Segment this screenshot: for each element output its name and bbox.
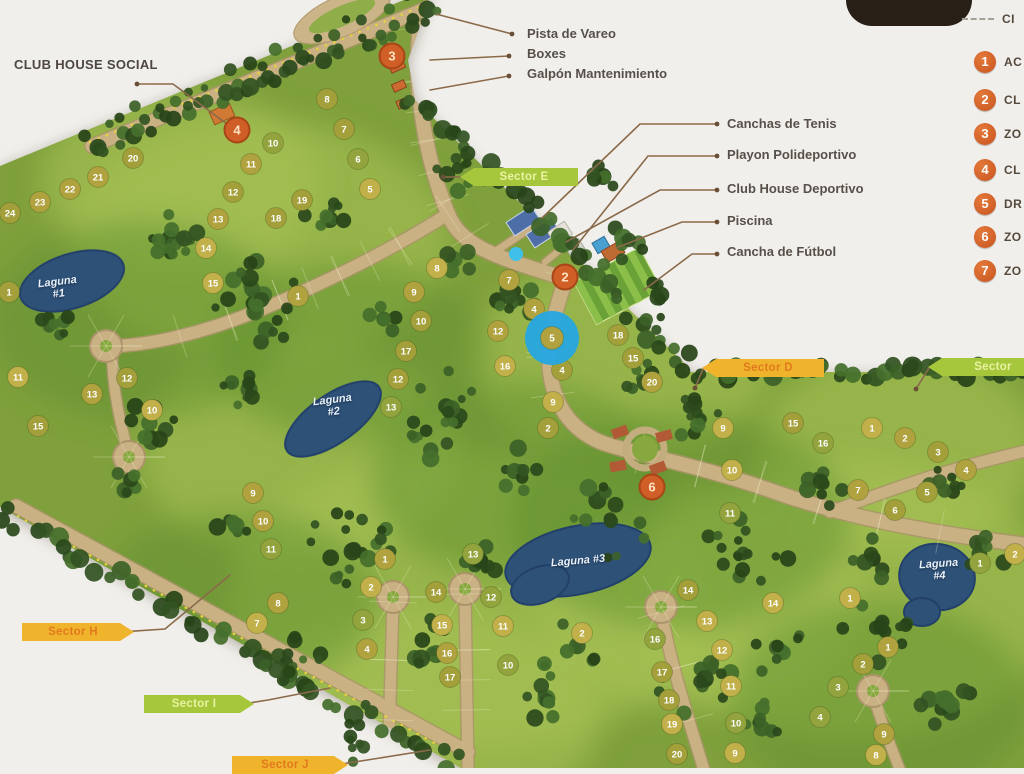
svg-text:9: 9 [732, 748, 737, 759]
svg-text:22: 22 [65, 184, 76, 195]
svg-text:2: 2 [579, 628, 584, 639]
lot-marker: 13 [697, 611, 718, 632]
svg-text:10: 10 [268, 138, 279, 149]
svg-text:11: 11 [498, 621, 509, 632]
lot-marker: 12 [388, 369, 409, 390]
lot-marker: 15 [28, 416, 49, 437]
svg-text:8: 8 [275, 598, 280, 609]
map-marker-2: 2 [553, 265, 578, 290]
lot-marker: 6 [885, 500, 906, 521]
svg-text:1: 1 [295, 291, 301, 302]
svg-text:18: 18 [664, 695, 675, 706]
svg-text:6: 6 [892, 505, 897, 516]
lot-marker: 16 [495, 356, 516, 377]
lot-marker: 11 [720, 503, 741, 524]
lot-marker: 24 [0, 203, 21, 224]
legend-item-marker: 3 [974, 123, 996, 145]
svg-text:12: 12 [486, 592, 497, 603]
lot-marker: 17 [396, 341, 417, 362]
svg-text:4: 4 [559, 365, 565, 376]
lot-marker: 8 [317, 89, 338, 110]
lot-marker: 22 [60, 179, 81, 200]
legend-label: CL [1004, 163, 1021, 177]
lot-marker: 11 [241, 154, 262, 175]
map-marker-6: 6 [640, 475, 665, 500]
lot-marker: 2 [538, 418, 559, 439]
sector-banner-label: Sector E [499, 171, 548, 183]
legend-item-marker: 2 [974, 89, 996, 111]
svg-text:10: 10 [503, 660, 514, 671]
lot-marker: 12 [223, 182, 244, 203]
svg-text:4: 4 [233, 123, 241, 138]
lot-marker: 11 [493, 616, 514, 637]
lot-marker: 3 [928, 442, 949, 463]
lot-marker: 2 [853, 654, 874, 675]
lot-marker: 2 [1005, 544, 1024, 565]
legend-item-6: 6ZO [974, 226, 1021, 248]
svg-text:21: 21 [93, 172, 104, 183]
lot-marker: 14 [196, 238, 217, 259]
sector-banner-right: Sector [928, 358, 1024, 376]
lot-marker: 10 [263, 133, 284, 154]
svg-text:9: 9 [720, 423, 725, 434]
svg-text:11: 11 [725, 508, 736, 519]
svg-text:5: 5 [367, 184, 373, 195]
label-piscina: Piscina [727, 213, 773, 228]
legend-item-marker: 5 [974, 193, 996, 215]
svg-text:1: 1 [847, 593, 853, 604]
lot-marker: 4 [810, 707, 831, 728]
lot-marker: 4 [357, 639, 378, 660]
lot-marker: 10 [142, 400, 163, 421]
svg-text:15: 15 [208, 278, 219, 289]
svg-text:1: 1 [977, 558, 983, 569]
svg-text:3: 3 [360, 615, 365, 626]
label-club-house-deportivo: Club House Deportivo [727, 181, 864, 196]
lot-marker: 10 [498, 655, 519, 676]
legend-item-2: 2CL [974, 89, 1021, 111]
sector-banner-label: Sector [974, 361, 1012, 373]
svg-text:9: 9 [250, 488, 255, 499]
lot-marker: 20 [642, 372, 663, 393]
svg-text:5: 5 [924, 487, 930, 498]
svg-text:8: 8 [324, 94, 329, 105]
lot-marker: 9 [243, 483, 264, 504]
legend-label: AC [1004, 55, 1022, 69]
svg-text:3: 3 [835, 682, 840, 693]
legend-item-5: 5DR [974, 193, 1022, 215]
lot-marker: 13 [208, 209, 229, 230]
svg-text:2: 2 [1012, 549, 1017, 560]
legend-item-3: 3ZO [974, 123, 1021, 145]
lot-marker: 16 [813, 433, 834, 454]
legend-dashed-item: CI [962, 12, 1015, 26]
lot-marker: 8 [268, 593, 289, 614]
sector-banner-j: Sector J [232, 756, 348, 774]
svg-text:1: 1 [885, 642, 891, 653]
masterplan-map: 2021222324101112131415187651918111213101… [0, 0, 1024, 768]
lot-marker: 12 [712, 640, 733, 661]
svg-text:11: 11 [13, 372, 24, 383]
lot-marker: 16 [645, 629, 666, 650]
legend-label: CI [1002, 12, 1015, 26]
lot-marker: 2 [572, 623, 593, 644]
lot-marker: 15 [783, 413, 804, 434]
label-pista-de-vareo: Pista de Vareo [527, 26, 616, 41]
lot-marker: 13 [381, 397, 402, 418]
lot-marker: 7 [247, 613, 268, 634]
svg-text:14: 14 [683, 585, 694, 596]
lot-marker: 15 [203, 273, 224, 294]
lot-marker: 12 [481, 587, 502, 608]
svg-text:13: 13 [702, 616, 713, 627]
svg-text:1: 1 [869, 423, 875, 434]
svg-text:4: 4 [963, 465, 969, 476]
svg-text:11: 11 [266, 544, 277, 555]
svg-text:2: 2 [561, 270, 568, 285]
piscina-dot [509, 247, 523, 261]
svg-text:1: 1 [382, 554, 388, 565]
sector-banner-i: Sector I [144, 695, 254, 713]
legend-label: ZO [1004, 230, 1021, 244]
svg-text:13: 13 [213, 214, 224, 225]
svg-text:11: 11 [246, 159, 257, 170]
lot-marker: 1 [840, 588, 861, 609]
lot-marker: 5 [360, 179, 381, 200]
lot-marker: 1 [375, 549, 396, 570]
legend-item-marker: 1 [974, 51, 996, 73]
lot-marker: 2 [895, 428, 916, 449]
svg-text:10: 10 [147, 405, 158, 416]
sector-banner-h: Sector H [22, 623, 134, 641]
sector-banner-label: Sector H [48, 626, 98, 638]
lot-marker: 9 [874, 724, 895, 745]
lot-marker: 18 [608, 325, 629, 346]
lot-marker: 10 [253, 511, 274, 532]
lot-marker: 10 [411, 311, 432, 332]
lot-marker: 9 [713, 418, 734, 439]
svg-text:12: 12 [717, 645, 728, 656]
lot-marker: 18 [659, 690, 680, 711]
lot-marker: 7 [334, 119, 355, 140]
svg-text:7: 7 [855, 485, 860, 496]
svg-text:7: 7 [506, 275, 511, 286]
svg-text:15: 15 [788, 418, 799, 429]
svg-text:10: 10 [416, 316, 427, 327]
lot-marker: 23 [30, 192, 51, 213]
svg-text:10: 10 [258, 516, 269, 527]
svg-text:13: 13 [87, 389, 98, 400]
svg-text:14: 14 [768, 598, 779, 609]
legend-label: DR [1004, 197, 1022, 211]
svg-text:12: 12 [122, 373, 133, 384]
legend-item-4: 4CL [974, 159, 1021, 181]
lot-marker: 14 [678, 580, 699, 601]
label-canchas-de-tenis: Canchas de Tenis [727, 116, 837, 131]
svg-text:1: 1 [6, 287, 12, 298]
svg-text:17: 17 [401, 346, 412, 357]
svg-text:12: 12 [393, 374, 404, 385]
lot-marker: 11 [8, 367, 29, 388]
dashed-line-icon [962, 18, 994, 20]
lot-marker: 3 [828, 677, 849, 698]
map-marker-3: 3 [380, 44, 405, 69]
lot-marker: 1 [0, 282, 20, 303]
svg-text:19: 19 [667, 719, 678, 730]
svg-text:2: 2 [368, 582, 373, 593]
svg-text:20: 20 [128, 153, 139, 164]
svg-text:16: 16 [442, 648, 453, 659]
svg-text:2: 2 [860, 659, 865, 670]
lot-marker: 8 [427, 258, 448, 279]
legend-item-marker: 4 [974, 159, 996, 181]
svg-text:2: 2 [545, 423, 550, 434]
svg-text:15: 15 [33, 421, 44, 432]
legend-label: CL [1004, 93, 1021, 107]
legend-item-1: 1AC [974, 51, 1022, 73]
legend-item-7: 7ZO [974, 260, 1021, 282]
lot-marker: 1 [970, 553, 991, 574]
lot-marker: 15 [623, 348, 644, 369]
label-cancha-de-futbol: Cancha de Fútbol [727, 244, 836, 259]
lot-marker: 1 [862, 418, 883, 439]
lot-marker: 19 [292, 190, 313, 211]
lot-marker: 16 [437, 643, 458, 664]
sector-banner-label: Sector J [261, 759, 309, 771]
svg-text:8: 8 [434, 263, 439, 274]
svg-text:9: 9 [411, 287, 416, 298]
svg-text:15: 15 [437, 620, 448, 631]
svg-text:4: 4 [364, 644, 370, 655]
lot-marker: 19 [662, 714, 683, 735]
sector-banner-label: Sector D [743, 362, 793, 374]
label-playon-polideportivo: Playon Polideportivo [727, 147, 856, 162]
lot-marker: 18 [266, 208, 287, 229]
lot-marker: 17 [440, 667, 461, 688]
svg-text:12: 12 [493, 326, 504, 337]
svg-text:4: 4 [531, 304, 537, 315]
svg-text:13: 13 [386, 402, 397, 413]
lot-marker: 11 [261, 539, 282, 560]
lot-marker: 15 [432, 615, 453, 636]
lot-marker: 13 [463, 544, 484, 565]
svg-text:13: 13 [468, 549, 479, 560]
lot-marker: 9 [725, 743, 746, 764]
svg-text:8: 8 [873, 750, 878, 761]
svg-text:4: 4 [817, 712, 823, 723]
svg-text:17: 17 [657, 667, 668, 678]
laguna-4-label: Laguna#4 [909, 556, 969, 584]
svg-text:17: 17 [445, 672, 456, 683]
svg-text:5: 5 [549, 334, 555, 345]
legend-label: ZO [1004, 127, 1021, 141]
masterplan-page: { "page": {"background": "#f1efeb"}, "ca… [0, 0, 1024, 768]
lot-marker: 9 [404, 282, 425, 303]
terrain [0, 3, 1024, 768]
svg-text:10: 10 [731, 718, 742, 729]
svg-text:9: 9 [550, 397, 555, 408]
svg-text:6: 6 [648, 480, 655, 495]
svg-text:9: 9 [881, 729, 886, 740]
lot-marker: 2 [361, 577, 382, 598]
lot-marker: 10 [726, 713, 747, 734]
svg-text:7: 7 [254, 618, 259, 629]
lot-marker: 20 [123, 148, 144, 169]
svg-text:2: 2 [902, 433, 907, 444]
svg-text:3: 3 [388, 49, 395, 64]
lot-marker: 12 [117, 368, 138, 389]
lot-marker: 4 [956, 460, 977, 481]
sector-banner-label: Sector I [172, 698, 217, 710]
legend-item-marker: 7 [974, 260, 996, 282]
lot-marker: 1 [288, 286, 309, 307]
svg-text:16: 16 [650, 634, 661, 645]
svg-text:16: 16 [818, 438, 829, 449]
lot-marker: 14 [763, 593, 784, 614]
label-galpon-mantenimiento: Galpón Mantenimiento [527, 66, 667, 81]
svg-text:12: 12 [228, 187, 239, 198]
svg-text:16: 16 [500, 361, 511, 372]
lot-marker: 9 [543, 392, 564, 413]
lot-marker: 13 [82, 384, 103, 405]
svg-text:20: 20 [647, 377, 658, 388]
svg-text:18: 18 [271, 213, 282, 224]
lot-marker: 12 [488, 321, 509, 342]
svg-text:3: 3 [935, 447, 940, 458]
lot-marker: 3 [353, 610, 374, 631]
lot-marker: 20 [667, 744, 688, 765]
svg-text:23: 23 [35, 197, 46, 208]
sector-banner-e: Sector E [460, 168, 578, 186]
map-marker-4: 4 [225, 118, 250, 143]
label-club-house-social: CLUB HOUSE SOCIAL [14, 57, 158, 72]
lot-marker: 7 [848, 480, 869, 501]
lot-marker: 7 [499, 270, 520, 291]
svg-text:14: 14 [431, 587, 442, 598]
lot-marker: 8 [866, 745, 887, 766]
svg-text:20: 20 [672, 749, 683, 760]
svg-text:15: 15 [628, 353, 639, 364]
lot-marker: 1 [878, 637, 899, 658]
corner-badge [846, 0, 972, 26]
sector-banner-d: Sector D [702, 359, 824, 377]
svg-text:19: 19 [297, 195, 308, 206]
label-boxes: Boxes [527, 46, 566, 61]
lot-marker: 6 [348, 149, 369, 170]
legend-item-marker: 6 [974, 226, 996, 248]
legend-label: ZO [1004, 264, 1021, 278]
svg-text:18: 18 [613, 330, 624, 341]
lot-marker: 10 [722, 460, 743, 481]
lot-marker: 21 [88, 167, 109, 188]
lot-marker: 14 [426, 582, 447, 603]
lot-marker: 11 [721, 676, 742, 697]
lot-marker: 17 [652, 662, 673, 683]
svg-text:6: 6 [355, 154, 360, 165]
svg-text:7: 7 [341, 124, 346, 135]
svg-text:10: 10 [727, 465, 738, 476]
lot-marker: 5 [917, 482, 938, 503]
svg-text:24: 24 [5, 208, 16, 219]
svg-text:14: 14 [201, 243, 212, 254]
svg-text:11: 11 [726, 681, 737, 692]
highlight-marker-5: 5 [525, 311, 579, 365]
